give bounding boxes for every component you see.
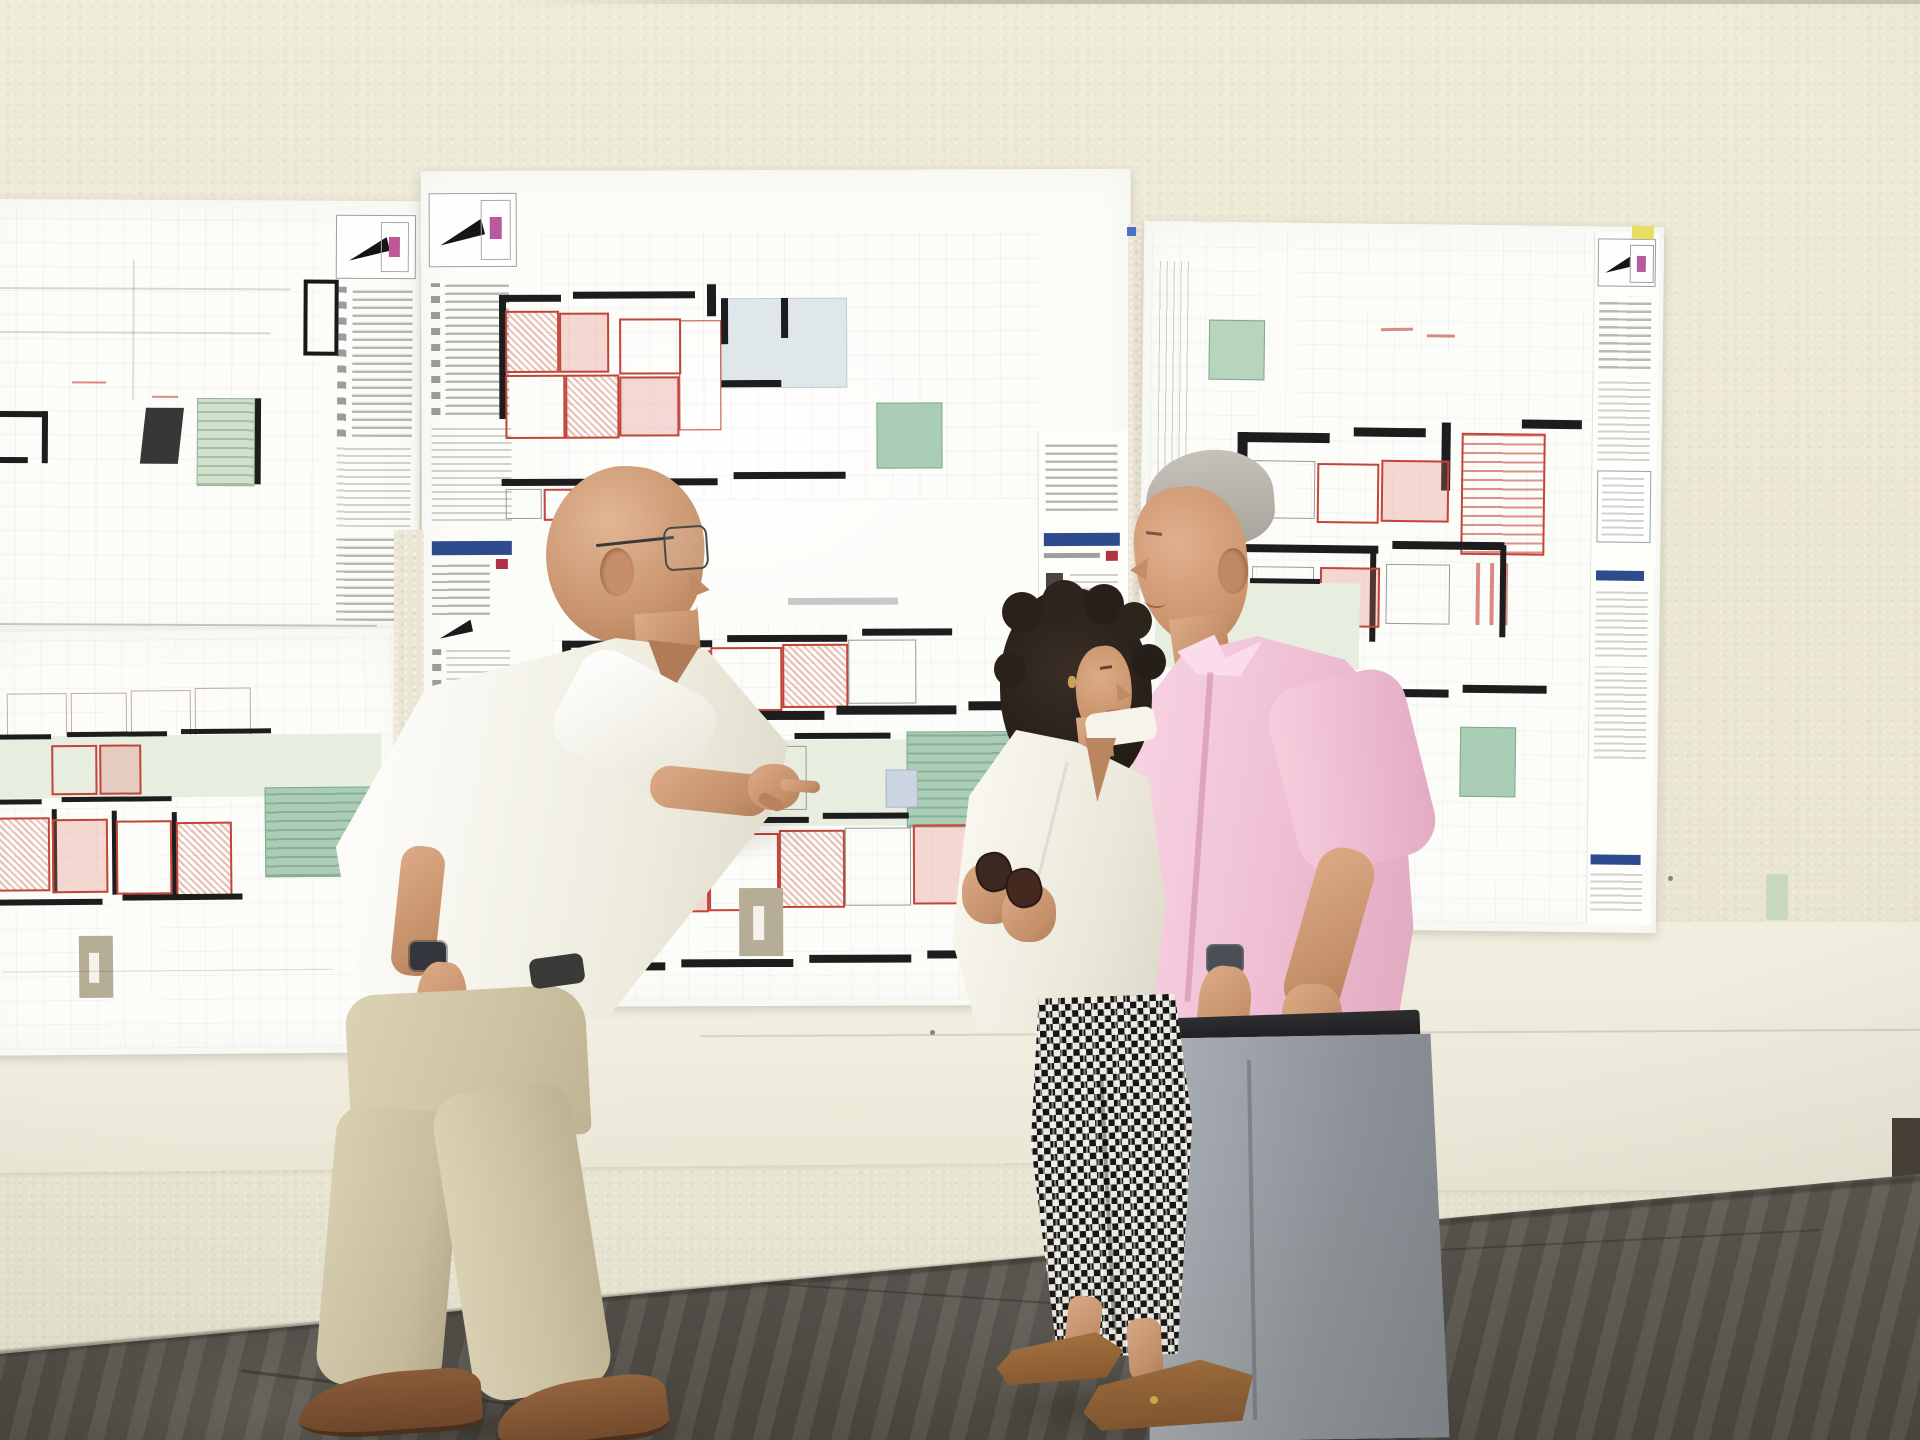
legend-rows <box>431 425 511 521</box>
plan-wall-segment <box>1238 432 1330 443</box>
sheet-top-left <box>0 199 421 635</box>
plan-room-red <box>559 313 609 373</box>
plan-room <box>506 489 542 519</box>
plan-room-red <box>0 817 50 892</box>
titleblock-text <box>1602 475 1645 536</box>
titleblock-blue-bar <box>1044 533 1120 546</box>
company-logo-red <box>1106 551 1118 561</box>
plan-room <box>845 828 911 906</box>
plan-wall-segment <box>573 291 695 298</box>
woman-hair-curl <box>994 652 1026 686</box>
plan-wall-segment <box>1499 545 1506 637</box>
plan-room-red <box>679 320 721 430</box>
plan-wall-segment <box>1236 544 1378 554</box>
plan-red-mark <box>72 381 106 383</box>
plan-elevator-blue <box>886 770 918 808</box>
north-arrow-icon <box>436 219 485 246</box>
titleblock-blue-bar <box>1591 854 1641 865</box>
plan-wall-segment <box>0 899 103 906</box>
woman-hair-curl <box>1002 592 1042 632</box>
legend-symbol-column <box>431 283 440 415</box>
titleblock-box <box>1596 470 1651 543</box>
key-plan-box <box>481 200 511 260</box>
architect-ear <box>600 548 634 596</box>
plan-room-red <box>505 375 565 439</box>
plan-wall-segment <box>707 284 716 316</box>
plan-wall-segment <box>721 380 781 387</box>
plan-red-mark <box>1427 334 1455 337</box>
shoe-buckle-gold <box>1150 1396 1158 1404</box>
titleblock-blue-bar <box>432 541 512 555</box>
plan-room-green <box>1459 727 1516 798</box>
photo-scene <box>0 0 1920 1440</box>
woman-earring <box>1068 676 1076 688</box>
woman-hair-curl <box>1132 644 1166 680</box>
plan-room <box>848 640 916 704</box>
north-arrow-box <box>336 215 416 279</box>
plan-wall-segment <box>0 734 51 740</box>
titleblock-text <box>1044 553 1100 558</box>
plan-wall-segment <box>0 799 42 805</box>
ceiling-line <box>500 0 1920 4</box>
glasses-lens-icon <box>663 525 710 572</box>
plan-room-red <box>565 375 619 439</box>
north-arrow-icon <box>437 620 473 639</box>
woman-hair-curl <box>1116 602 1152 640</box>
plan-stair-red-hatch <box>1460 433 1545 556</box>
plan-red-mark <box>152 396 178 398</box>
titleblock-text <box>1595 586 1648 657</box>
legend-rows <box>352 287 413 437</box>
legend-rows <box>1599 296 1652 369</box>
plan-wall-segment <box>862 628 952 635</box>
plan-wall-segment <box>721 298 728 344</box>
plan-room-red <box>505 311 559 373</box>
plan-stair-tan <box>79 936 114 998</box>
legend-rows <box>1594 666 1647 759</box>
plan-room-red <box>782 644 848 708</box>
plan-wall-segment <box>1522 419 1582 429</box>
plan-wall-segment <box>0 457 28 463</box>
plan-caption-text <box>788 598 898 605</box>
plan-wall-segment <box>836 705 956 714</box>
plan-wall-segment <box>181 728 271 734</box>
plan-wall-segment <box>734 472 846 479</box>
key-plan-marker <box>389 237 400 257</box>
titleblock-paragraph <box>336 447 410 527</box>
plan-room-red <box>1317 463 1380 524</box>
titleblock-text <box>1590 870 1642 911</box>
plan-wall-segment <box>1250 578 1320 584</box>
plan-wall-segment <box>781 298 788 338</box>
plan-room <box>1385 564 1450 625</box>
plan-red-rail <box>1489 563 1494 625</box>
key-plan-marker <box>1637 256 1646 272</box>
plan-wall-segment <box>67 731 167 737</box>
plan-room-red <box>99 744 141 794</box>
wall-green-strip <box>1766 874 1788 920</box>
legend-rows <box>1045 441 1117 511</box>
plan-room-red <box>51 745 97 795</box>
plan-wall-segment <box>499 295 561 302</box>
plan-red-rail <box>1475 563 1480 625</box>
north-arrow-icon <box>1603 257 1633 273</box>
plan-wall-segment <box>727 635 847 642</box>
plan-room-red <box>619 318 681 374</box>
plan-room-red <box>1381 460 1450 523</box>
plan-stair-tan <box>739 888 783 956</box>
plan-door-block <box>140 408 184 464</box>
plan-stair-green <box>197 398 255 486</box>
plan-wall-segment <box>0 411 46 417</box>
plan-wall-segment <box>809 955 911 963</box>
titleblock-text <box>1597 376 1650 461</box>
plan-room-green <box>876 402 942 468</box>
plan-room-red <box>176 822 233 898</box>
pinkman-ear <box>1218 548 1248 594</box>
plan-stair-slot <box>753 906 764 940</box>
plan-wall-segment <box>122 894 242 901</box>
plan-wall-segment <box>42 411 48 463</box>
plan-wall-segment <box>795 733 891 739</box>
plan-stair-slot <box>89 953 99 983</box>
key-plan-box <box>1630 245 1654 283</box>
plan-room-outline <box>303 280 338 356</box>
plan-room-red <box>52 819 109 893</box>
legend-symbol-column <box>337 287 347 437</box>
plan-wall-segment <box>1463 685 1547 694</box>
plan-room-red <box>619 376 679 436</box>
plan-wall-segment <box>62 796 172 802</box>
plan-wall-segment <box>681 959 793 967</box>
key-plan-box <box>381 222 409 272</box>
plan-room-green <box>1208 320 1265 381</box>
titleblock-blue-bar <box>1596 570 1644 581</box>
sticky-yellow-tab <box>1632 225 1655 239</box>
plan-room-red <box>116 820 173 894</box>
tape-blue-dot <box>1127 227 1136 236</box>
wall-screw-dot <box>930 1030 935 1035</box>
wall-screw-dot <box>1668 876 1673 881</box>
titleblock-text <box>432 563 490 615</box>
plan-wall-segment <box>255 398 261 484</box>
woman-hair-curl <box>1042 580 1086 622</box>
company-logo-red <box>496 559 508 569</box>
plan-wall-segment <box>1392 541 1504 550</box>
plan-wall-segment <box>823 813 909 819</box>
key-plan-marker <box>490 217 502 239</box>
plan-wall-segment <box>1354 427 1426 437</box>
north-arrow-box <box>429 193 517 267</box>
